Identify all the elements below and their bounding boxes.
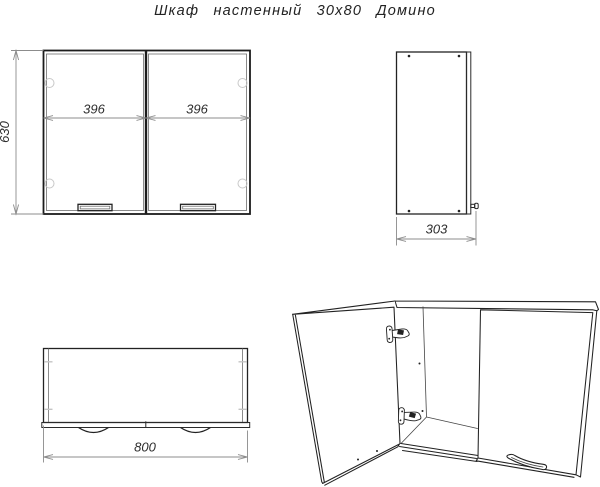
dimension-width: 800	[44, 426, 248, 463]
drawing-sheet: Шкаф настенный 30х80 Домино 630	[0, 0, 600, 487]
right-door-panel	[149, 54, 247, 211]
dimension-depth: 303	[397, 211, 477, 246]
screw-markers	[408, 55, 461, 213]
hinge-top-icon	[386, 326, 409, 343]
dimension-height: 630	[0, 51, 44, 215]
iso-open-door	[293, 301, 400, 485]
dowel-markers	[45, 362, 247, 410]
side-handle-icon	[471, 203, 478, 208]
depth-dim-label: 303	[426, 222, 448, 237]
dimension-right-door-width: 396	[146, 102, 250, 121]
drawing-title: Шкаф настенный 30х80 Домино	[154, 3, 436, 19]
top-view: 800	[42, 349, 250, 463]
iso-top-panel	[395, 301, 599, 311]
left-door-panel	[47, 54, 144, 211]
left-door-width-label: 396	[83, 102, 105, 117]
right-handle-arc-icon	[181, 428, 211, 433]
side-panel-outline	[397, 52, 467, 214]
left-door-handle-icon	[78, 204, 112, 210]
height-dim-label: 630	[0, 120, 12, 142]
left-handle-arc-icon	[79, 428, 109, 433]
hinge-bottom-icon	[397, 407, 422, 426]
front-view: 630 396 396	[0, 51, 250, 215]
dimension-left-door-width: 396	[44, 102, 147, 121]
width-dim-label: 800	[134, 440, 156, 455]
right-door-handle-icon	[181, 204, 216, 210]
side-view: 303	[397, 52, 479, 246]
carcass-outline	[44, 349, 248, 423]
isometric-view	[293, 301, 599, 485]
right-door-width-label: 396	[186, 102, 208, 117]
iso-right-door	[476, 310, 597, 478]
iso-interior	[400, 307, 479, 462]
